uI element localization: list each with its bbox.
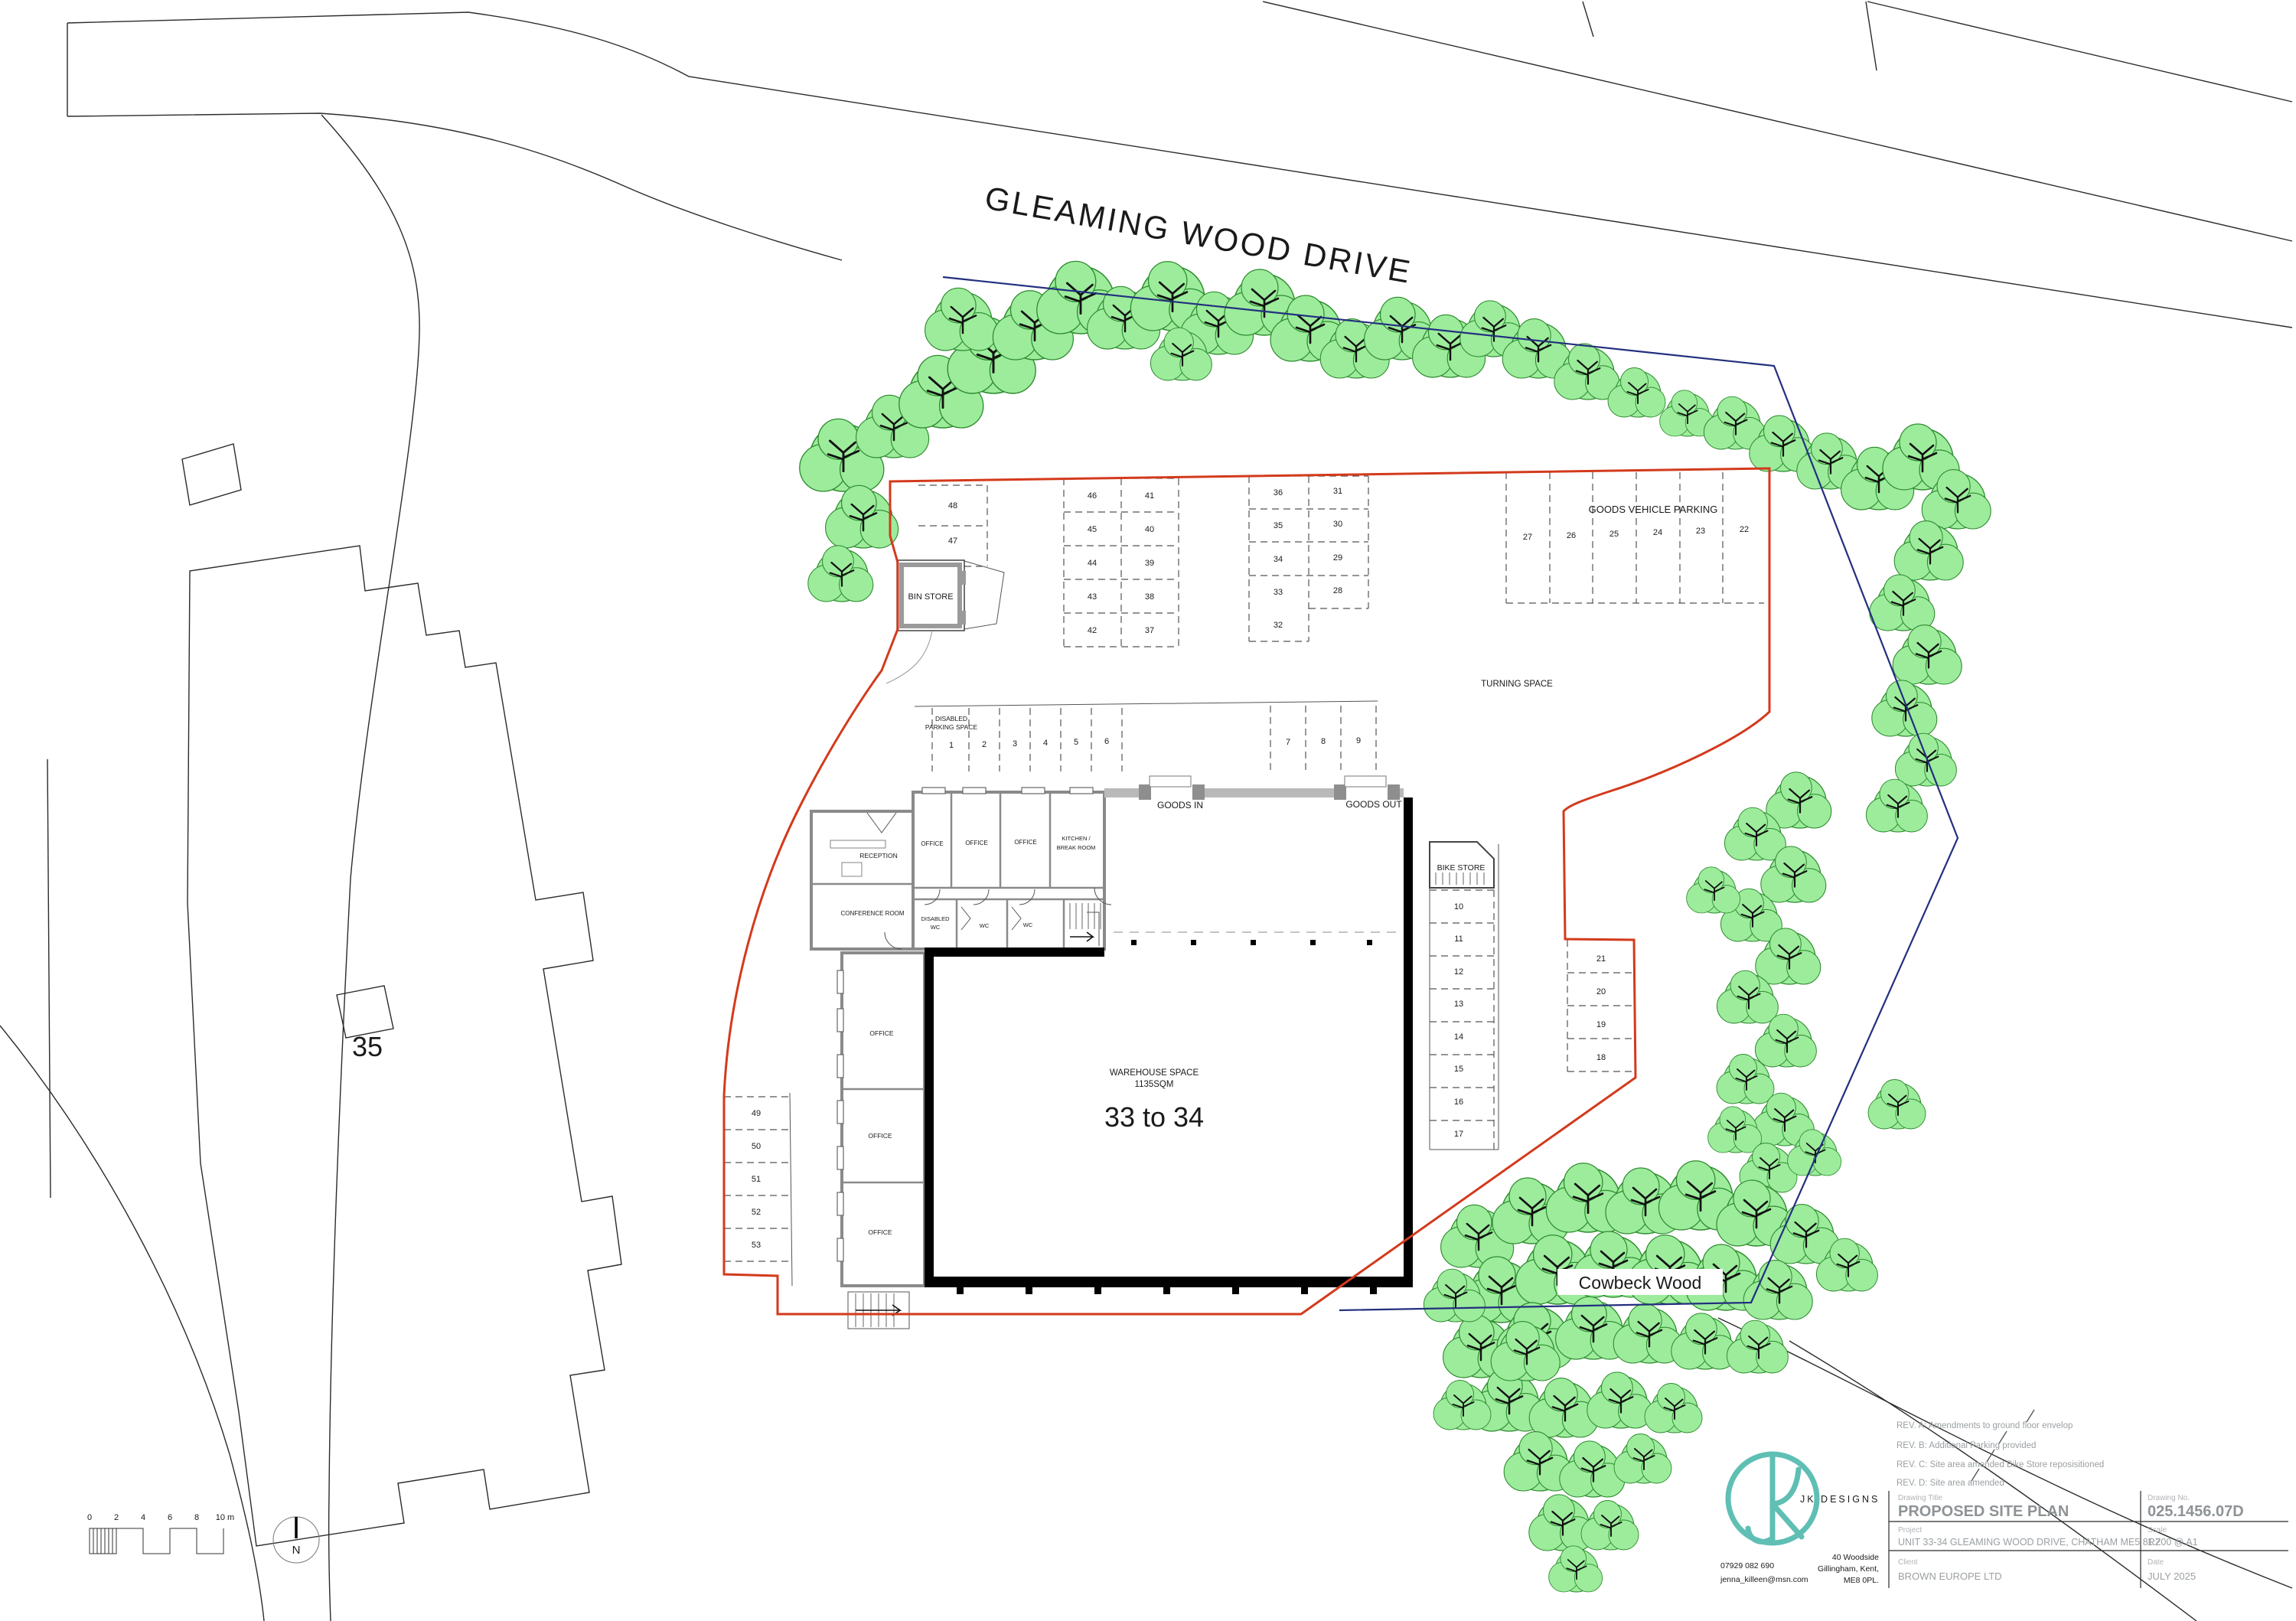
wc-label: WC (1023, 921, 1033, 928)
parking-space-number: 53 (752, 1241, 761, 1250)
office-label: OFFICE (868, 1228, 892, 1236)
date-label: Date (2148, 1558, 2164, 1567)
bin-store (886, 560, 1004, 683)
kitchen-label-2: BREAK ROOM (1057, 844, 1096, 851)
parking-space-number: 13 (1454, 1000, 1463, 1009)
parking-space-number: 18 (1596, 1053, 1606, 1062)
parking-space-number: 14 (1454, 1032, 1463, 1042)
tree-icon (1433, 1381, 1491, 1430)
unit-33-34-building (811, 776, 1413, 1329)
bike-store-label: BIKE STORE (1437, 863, 1486, 872)
goods-vehicle-parking-label: GOODS VEHICLE PARKING (1589, 504, 1718, 515)
tree-icon (1766, 772, 1831, 828)
address-line: 40 Woodside (1832, 1553, 1879, 1562)
address-line: Gillingham, Kent, (1818, 1564, 1879, 1574)
disabled-wc-label-2: WC (931, 924, 941, 931)
parking-space-number: 1 (949, 741, 954, 750)
unit-range-label: 33 to 34 (1104, 1101, 1204, 1133)
parking-space-number: 2 (982, 740, 987, 749)
road-network (0, 2, 2292, 1621)
parking-space-number: 39 (1145, 559, 1154, 568)
tree-icon (1587, 1372, 1652, 1428)
parking-space-number: 21 (1596, 954, 1606, 964)
client-label: Client (1898, 1558, 1918, 1567)
scale-label: Scale (2148, 1526, 2167, 1535)
site-plan-drawing: GLEAMING WOOD DRIVE 35 GOODS VEHICLE PAR… (0, 0, 2296, 1621)
kitchen-label-1: KITCHEN / (1062, 835, 1091, 842)
office-row (913, 792, 1104, 949)
tree-icon (826, 485, 899, 548)
cowbeck-wood-label: Cowbeck Wood (1557, 1269, 1723, 1295)
parking-space-number: 50 (752, 1142, 761, 1151)
parking-space-number: 49 (752, 1109, 761, 1118)
parking-space-number: 32 (1274, 621, 1283, 630)
parking-space-number: 37 (1145, 626, 1154, 635)
north-label: N (292, 1544, 301, 1557)
scalebar-tick-label: 0 (87, 1513, 92, 1522)
parking-space-number: 26 (1567, 531, 1576, 540)
parking-space-number: 30 (1333, 520, 1342, 529)
drawing-no-value: 025.1456.07D (2148, 1503, 2244, 1520)
road-name-label: GLEAMING WOOD DRIVE (982, 180, 1414, 291)
parking-space-number: 19 (1596, 1020, 1606, 1029)
disabled-parking-label-1: DISABLED (935, 715, 967, 722)
parking-space-number: 35 (1274, 521, 1283, 530)
parking-space-number: 8 (1321, 737, 1326, 746)
disabled-wc-label-1: DISABLED (921, 915, 950, 922)
warehouse-space-label: WAREHOUSE SPACE (1110, 1068, 1199, 1078)
disabled-parking-label-2: PARKING SPACE (925, 723, 978, 731)
tree-icon (1687, 867, 1740, 913)
office-label: OFFICE (921, 840, 943, 847)
office-label: OFFICE (869, 1029, 893, 1037)
parking-space-number: 12 (1454, 967, 1463, 977)
wc-label: WC (980, 922, 990, 929)
parking-space-number: 28 (1333, 586, 1342, 595)
goods-in-label: GOODS IN (1157, 800, 1203, 810)
parking-space-number: 31 (1333, 487, 1342, 496)
parking-space-number: 11 (1454, 934, 1463, 944)
tree-icon (808, 546, 873, 602)
revision-note: REV. B: Additional Parking provided (1896, 1441, 2036, 1450)
turning-space-label: TURNING SPACE (1481, 680, 1553, 689)
neighbor-35-label: 35 (352, 1031, 383, 1062)
parking-space-number: 27 (1523, 533, 1532, 542)
conference-room-label: CONFERENCE ROOM (840, 910, 904, 917)
warehouse-area-label: 1135SQM (1135, 1080, 1174, 1089)
tree-icon (1549, 1546, 1603, 1592)
scalebar-tick-label: 4 (141, 1513, 145, 1522)
reception-wing (811, 811, 913, 949)
project-label: Project (1898, 1526, 1922, 1535)
parking-space-number: 6 (1104, 737, 1109, 746)
neighbor-building-35 (182, 444, 621, 1546)
phone: 07929 082 690 (1720, 1561, 1774, 1570)
parking-space-number: 16 (1454, 1098, 1463, 1107)
drawing-title-label: Drawing Title (1898, 1494, 1942, 1502)
tree-icon (1708, 1107, 1762, 1153)
office-label: OFFICE (868, 1132, 892, 1140)
revision-note: REV. C: Site area amended Bike Store rep… (1896, 1460, 2104, 1469)
parking-space-number: 9 (1356, 736, 1361, 745)
client-value: BROWN EUROPE LTD (1898, 1570, 2002, 1582)
parking-space-number: 3 (1013, 739, 1017, 749)
tree-icon (1870, 575, 1935, 631)
parking-space-number: 48 (948, 501, 957, 510)
scale-bar: 0246810 m (87, 1513, 234, 1554)
tree-icon (1866, 779, 1927, 832)
tree-icon (1895, 733, 1956, 786)
parking-space-number: 20 (1596, 987, 1606, 996)
parking-space-number: 51 (752, 1175, 761, 1184)
reception-label: RECEPTION (859, 852, 898, 859)
parking-space-number: 38 (1145, 592, 1154, 602)
logo-text: JK DESIGNS (1800, 1494, 1880, 1505)
project-value: UNIT 33-34 GLEAMING WOOD DRIVE, CHATHAM … (1898, 1537, 2161, 1548)
parking-space-number: 44 (1088, 559, 1097, 568)
parking-space-number: 25 (1609, 530, 1619, 539)
parking-space-number: 40 (1145, 525, 1154, 534)
revision-note: REV. D: Site area amended (1896, 1479, 2004, 1488)
title-block: REV. A: Amendments to ground floor envel… (1720, 1410, 2288, 1588)
tree-icon (1581, 1501, 1639, 1551)
parking-space-number: 46 (1088, 491, 1097, 501)
parking-space-number: 42 (1088, 626, 1097, 635)
date-value: JULY 2025 (2148, 1570, 2196, 1582)
parking-space-number: 33 (1274, 588, 1283, 597)
svg-text:Cowbeck Wood: Cowbeck Wood (1579, 1273, 1702, 1293)
scale-value: 1:200 @ A1 (2148, 1537, 2198, 1548)
tree-icon (925, 288, 998, 351)
parking-space-number: 7 (1286, 738, 1290, 747)
drawing-title-value: PROPOSED SITE PLAN (1898, 1503, 2069, 1520)
parking-space-number: 43 (1088, 592, 1097, 602)
tree-icon (1868, 1080, 1926, 1130)
tree-icon (1893, 625, 1962, 684)
address-line: ME8 0PL. (1844, 1576, 1879, 1585)
office-label: OFFICE (1014, 839, 1036, 846)
external-stair (848, 1292, 909, 1329)
parking-space-number: 17 (1454, 1130, 1463, 1139)
goods-out-label: GOODS OUT (1345, 799, 1402, 810)
parking-space-number: 10 (1454, 902, 1463, 912)
scalebar-tick-label: 6 (168, 1513, 172, 1522)
parking-space-number: 23 (1696, 527, 1705, 536)
parking-space-number: 36 (1274, 488, 1283, 497)
drawing-no-label: Drawing No. (2148, 1494, 2190, 1502)
tree-icon (1645, 1384, 1702, 1433)
parking-space-number: 29 (1333, 553, 1342, 563)
tree-icon (1894, 521, 1963, 580)
parking-space-number: 47 (948, 537, 957, 546)
parking-space-number: 22 (1740, 525, 1749, 534)
parking-space-number: 4 (1043, 739, 1048, 748)
office-label: OFFICE (965, 840, 987, 846)
parking-space-number: 34 (1274, 555, 1283, 564)
parking-space-number: 41 (1145, 491, 1154, 501)
parking-space-number: 45 (1088, 525, 1097, 534)
parking-space-number: 24 (1653, 528, 1662, 537)
site-plan-sheet: GLEAMING WOOD DRIVE 35 GOODS VEHICLE PAR… (0, 0, 2296, 1621)
tree-icon (1872, 680, 1937, 736)
bin-store-label: BIN STORE (908, 592, 953, 602)
scalebar-tick-label: 10 m (216, 1513, 234, 1522)
scalebar-tick-label: 2 (114, 1513, 119, 1522)
jk-designs-logo: JK DESIGNS (1728, 1454, 1880, 1543)
parking-space-number: 52 (752, 1208, 761, 1217)
parking-space-number: 15 (1454, 1065, 1463, 1074)
email: jenna_killeen@msn.com (1720, 1575, 1808, 1584)
revision-note: REV. A: Amendments to ground floor envel… (1896, 1421, 2073, 1430)
parking-space-number: 5 (1074, 738, 1078, 747)
tree-icon (1727, 1320, 1788, 1373)
scalebar-tick-label: 8 (194, 1513, 199, 1522)
tree-icon (1614, 1434, 1671, 1484)
